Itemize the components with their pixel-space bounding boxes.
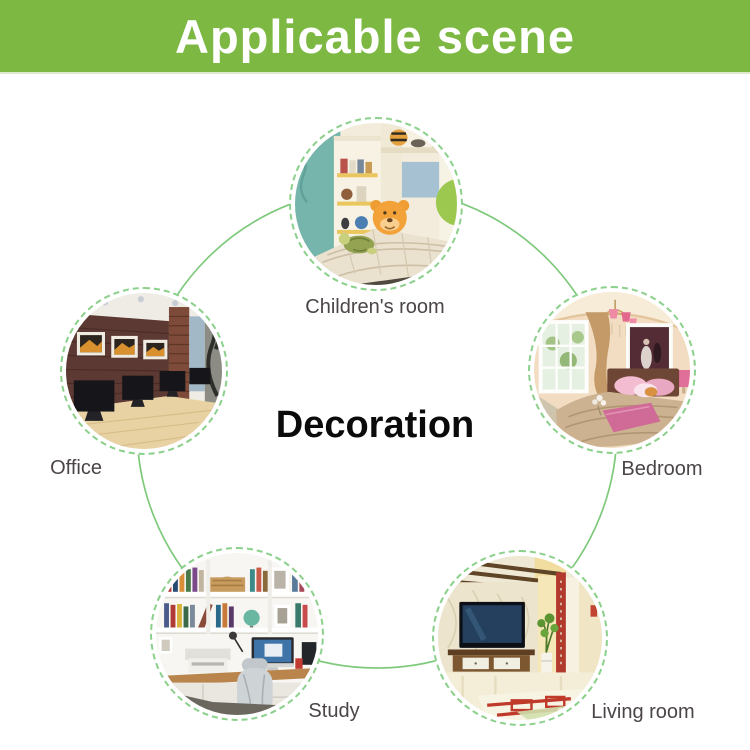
scene-circle-office <box>60 287 228 455</box>
scene-circle-living-room <box>432 550 608 726</box>
scene-circle-study <box>150 547 324 721</box>
office-photo <box>66 293 222 449</box>
bedroom-photo <box>534 292 690 448</box>
center-title: Decoration <box>276 404 474 447</box>
label-bedroom: Bedroom <box>621 458 702 480</box>
label-children-room: Children's room <box>305 296 444 318</box>
scene-circle-children-room <box>289 117 463 291</box>
living-room-photo <box>438 556 602 720</box>
label-office: Office <box>50 457 102 479</box>
label-study: Study <box>308 700 359 722</box>
study-photo <box>156 553 318 715</box>
label-living-room: Living room <box>591 701 694 723</box>
scene-circle-bedroom <box>528 286 696 454</box>
children-room-photo <box>295 123 457 285</box>
